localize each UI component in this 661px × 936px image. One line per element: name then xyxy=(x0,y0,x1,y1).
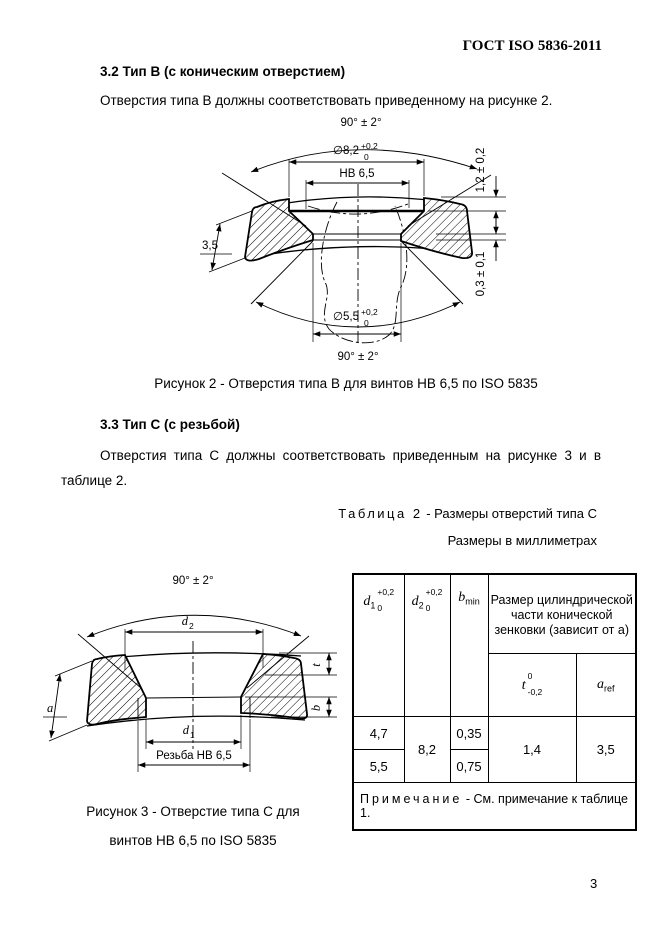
d2-subscript: 2 xyxy=(419,601,424,611)
hatched-section-right xyxy=(241,654,307,719)
section-3-2-paragraph: Отверстия типа B должны соответствовать … xyxy=(61,88,601,113)
fig2-depth-label: 1,2 ± 0,2 xyxy=(475,148,487,193)
col-header-d1: d1+0,20 xyxy=(353,574,404,717)
section-3-3-paragraph: Отверстия типа C должны соответствовать … xyxy=(61,443,601,493)
d2-symbol: d xyxy=(412,594,419,609)
figure-2-caption: Рисунок 2 - Отверстия типа B для винтов … xyxy=(90,376,602,391)
fig2-dia-bottom-sup: +0,2 xyxy=(361,307,378,317)
col-header-t: t0-0,2 xyxy=(488,654,576,717)
col-header-a-ref: aref xyxy=(576,654,636,717)
fig3-d1-symbol: d xyxy=(183,723,190,737)
table-2-title-text: - Размеры отверстий типа C xyxy=(426,506,597,521)
col-header-d2: d2+0,20 xyxy=(404,574,450,717)
cell-d1-row2: 5,5 xyxy=(353,750,404,783)
cell-a-ref: 3,5 xyxy=(576,717,636,783)
fig2-angle-bottom-label: 90° ± 2° xyxy=(337,351,378,363)
cell-t: 1,4 xyxy=(488,717,576,783)
step-edges xyxy=(313,234,401,240)
figure-3-caption-line2: винтов HB 6,5 по ISO 5835 xyxy=(62,826,324,855)
fig2-thickness-label: 3,5 xyxy=(202,240,218,252)
cell-d1-row1: 4,7 xyxy=(353,717,404,750)
countersink-bottom-edge xyxy=(146,697,241,698)
a-subscript: ref xyxy=(604,684,615,694)
t-tolerance: 0-0,2 xyxy=(528,672,543,697)
fig3-d2-symbol: d xyxy=(182,614,189,628)
table-note: Примечание - См. примечание к таблице 1. xyxy=(353,783,636,831)
table-note-label: Примечание xyxy=(360,792,462,806)
fig2-dia-bottom-label: ∅5,5 xyxy=(333,311,359,323)
document-title: ГОСТ ISO 5836-2011 xyxy=(463,38,602,55)
cell-b-row2: 0,75 xyxy=(450,750,488,783)
fig3-angle-label: 90° ± 2° xyxy=(172,575,213,587)
table-2-title: Таблица 2 - Размеры отверстий типа C xyxy=(338,506,597,521)
fig2-dia-top-sup: +0,2 xyxy=(361,141,378,151)
fig3-thread-label: Резьба HB 6,5 xyxy=(156,750,232,762)
section-3-2-heading: 3.2 Тип B (с коническим отверстием) xyxy=(100,64,345,79)
table-row: 4,7 8,2 0,35 1,4 3,5 xyxy=(353,717,636,750)
fig3-b-label: b xyxy=(309,705,323,711)
fig2-step-label: 0,3 ± 0,1 xyxy=(475,252,487,297)
fig2-dia-top-sub: 0 xyxy=(364,152,369,162)
col-header-b-min: bmin xyxy=(450,574,488,717)
cell-d2: 8,2 xyxy=(404,717,450,783)
table-2-units: Размеры в миллиметрах xyxy=(448,533,597,548)
fig3-d1-subscript: 1 xyxy=(190,730,195,740)
section-3-3-heading: 3.3 Тип C (с резьбой) xyxy=(100,417,240,432)
plate-section xyxy=(87,653,307,726)
figure-3-caption: Рисунок 3 - Отверстие типа C для винтов … xyxy=(62,797,324,855)
figure-3-technical-drawing: 90° ± 2° d 2 t b a d 1 Резьба HB 6,5 xyxy=(41,567,341,779)
hatched-section-left xyxy=(87,655,146,725)
figure-2-technical-drawing: 90° ± 2° ∅8,2 +0,2 0 HB 6,5 1,2 ± 0,2 0,… xyxy=(196,112,520,364)
t-symbol: t xyxy=(522,677,526,692)
d1-subscript: 1 xyxy=(370,601,375,611)
document-page: ГОСТ ISO 5836-2011 3.2 Тип B (с коническ… xyxy=(0,0,661,936)
figure-3-caption-line1: Рисунок 3 - Отверстие типа C для xyxy=(62,797,324,826)
fig3-a-label: a xyxy=(47,701,53,715)
hatched-section-right xyxy=(401,198,472,258)
cell-b-row1: 0,35 xyxy=(450,717,488,750)
page-number: 3 xyxy=(590,876,597,891)
table-2-title-label: Таблица 2 xyxy=(338,506,422,521)
fig3-t-label: t xyxy=(309,663,323,667)
a-symbol: a xyxy=(597,677,604,692)
plate-section xyxy=(245,197,472,261)
d1-tolerance: +0,20 xyxy=(377,588,394,613)
fig3-d2-subscript: 2 xyxy=(189,621,194,631)
table-2: d1+0,20 d2+0,20 bmin Размер цилиндрическ… xyxy=(352,573,637,831)
d2-tolerance: +0,20 xyxy=(426,588,443,613)
fig2-screw-label: HB 6,5 xyxy=(339,168,374,180)
fig2-dia-bottom-sub: 0 xyxy=(364,318,369,328)
fig2-dia-top-label: ∅8,2 xyxy=(333,145,359,157)
fig2-angle-top-label: 90° ± 2° xyxy=(340,117,381,129)
b-subscript: min xyxy=(465,597,480,607)
col-group-header: Размер цилиндрической части конической з… xyxy=(488,574,636,654)
